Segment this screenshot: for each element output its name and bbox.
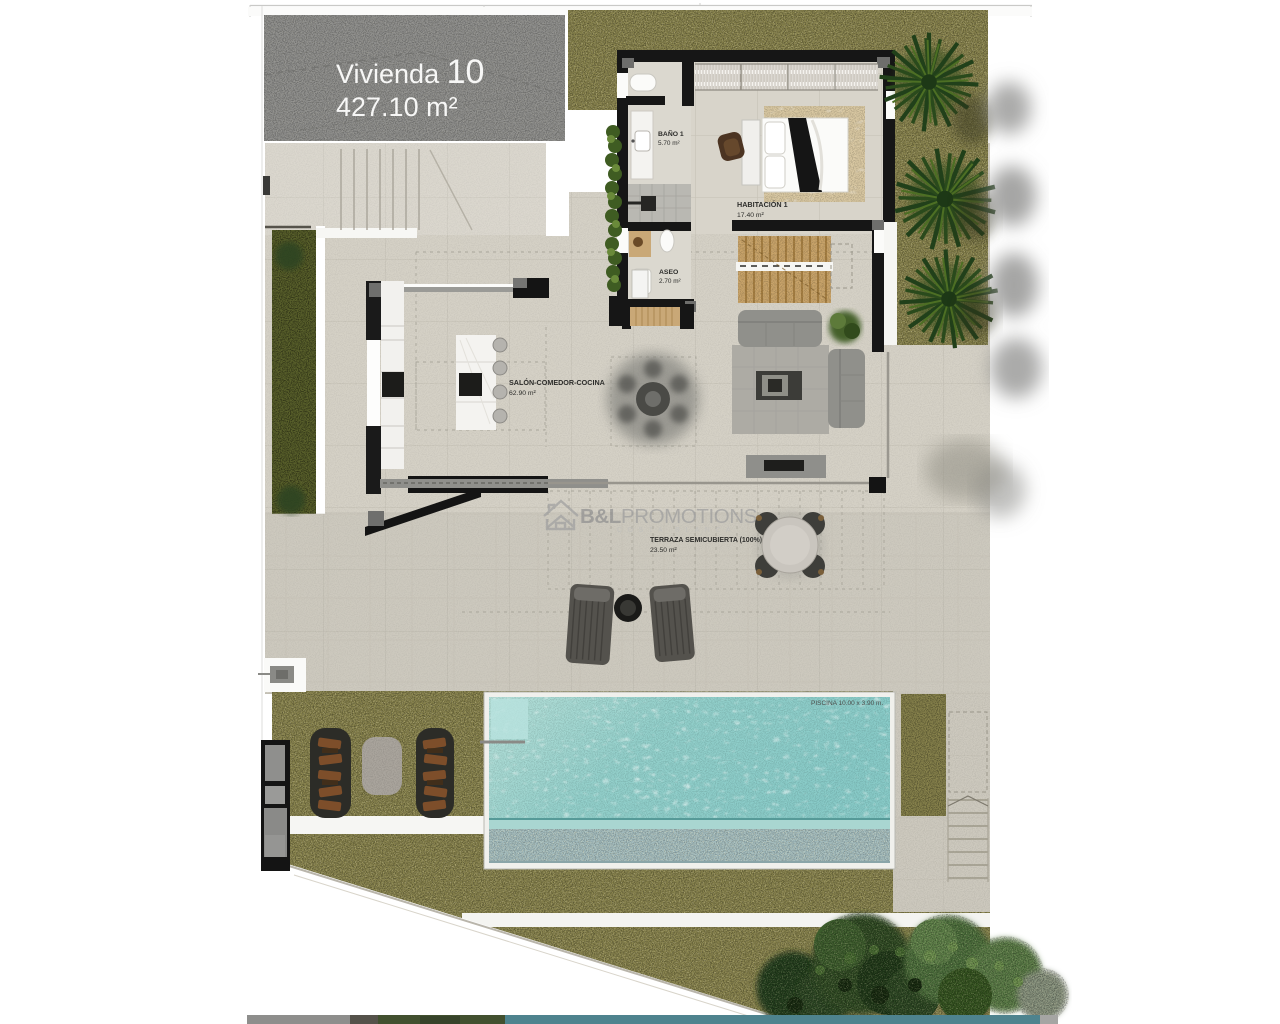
svg-text:5.70 m²: 5.70 m² [658, 140, 680, 147]
svg-text:SALÓN-COMEDOR-COCINA: SALÓN-COMEDOR-COCINA [509, 378, 605, 387]
svg-text:23.50 m²: 23.50 m² [650, 547, 678, 554]
svg-text:427.10 m²: 427.10 m² [336, 92, 458, 122]
svg-text:PISCINA 10.00 x 3.90 m.: PISCINA 10.00 x 3.90 m. [811, 700, 883, 707]
svg-text:Vivienda 10: Vivienda 10 [336, 53, 484, 91]
svg-text:BAÑO 1: BAÑO 1 [658, 129, 684, 138]
svg-text:HABITACIÓN 1: HABITACIÓN 1 [737, 200, 788, 209]
svg-text:B&LPROMOTIONS: B&LPROMOTIONS [580, 505, 757, 528]
svg-text:COSTA BLANCA: COSTA BLANCA [617, 527, 736, 534]
svg-text:17.40 m²: 17.40 m² [737, 212, 765, 219]
svg-text:ASEO: ASEO [659, 269, 678, 276]
svg-text:62.90 m²: 62.90 m² [509, 390, 537, 397]
svg-text:2.70 m²: 2.70 m² [659, 278, 681, 285]
svg-text:TERRAZA SEMICUBIERTA (100%): TERRAZA SEMICUBIERTA (100%) [650, 537, 762, 544]
